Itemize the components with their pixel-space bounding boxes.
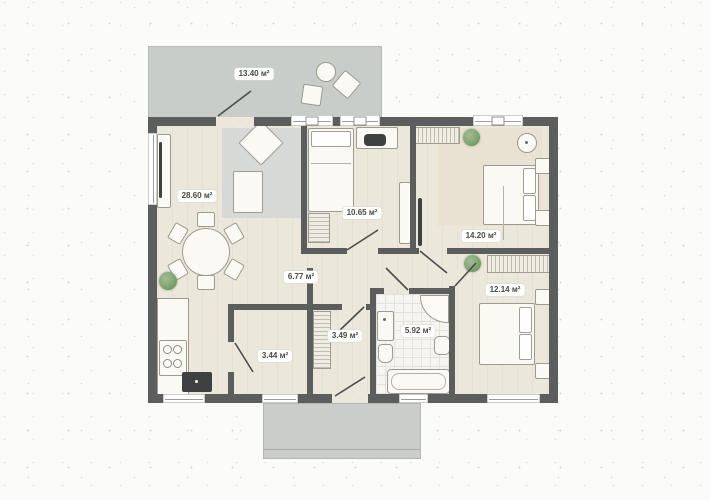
room-label-bedroom-master: 14.20 м² xyxy=(462,230,501,242)
room-label-bathroom: 5.92 м² xyxy=(401,325,435,337)
dining-chair xyxy=(197,275,215,290)
terrace-chair xyxy=(301,84,324,107)
wall-pantry-left xyxy=(228,372,234,394)
bathroom-sink xyxy=(434,336,450,355)
wall-pantry-top xyxy=(228,304,307,310)
wall-bedroom-hall xyxy=(301,248,347,254)
wall-bathroom-left xyxy=(370,288,376,394)
window-kitchen xyxy=(163,394,205,403)
room-label-hallway: 6.77 м² xyxy=(284,271,318,283)
tv-screen xyxy=(159,142,162,198)
wall-entry-top xyxy=(313,304,342,310)
desk-chair xyxy=(364,134,386,146)
terrace-door-opening xyxy=(216,117,254,126)
room-label-bedroom-small: 10.65 м² xyxy=(343,207,382,219)
washing-machine xyxy=(377,311,394,341)
stove xyxy=(159,340,187,376)
terrace-table xyxy=(316,62,336,82)
shelf-unit xyxy=(308,213,330,243)
window-bedroom-master xyxy=(473,115,523,126)
floor-lamp xyxy=(517,133,537,153)
wall-pantry-entry xyxy=(307,268,313,394)
entrance-porch xyxy=(263,403,421,459)
exterior-wall-right xyxy=(549,117,558,403)
pillow xyxy=(519,307,532,333)
window-bathroom xyxy=(399,394,428,403)
window-pantry xyxy=(262,394,298,403)
single-bed xyxy=(308,128,354,212)
wall-entry-top xyxy=(366,304,370,310)
wall-between-bedrooms xyxy=(410,117,416,254)
dresser xyxy=(414,127,460,144)
porch-step-line xyxy=(264,449,420,450)
window-bedroom-small xyxy=(291,115,333,126)
window-bedroom-second xyxy=(487,394,540,403)
dining-table xyxy=(182,228,230,276)
plant-icon xyxy=(159,272,177,290)
wardrobe xyxy=(487,255,551,273)
window-bedroom-small xyxy=(340,115,380,126)
kitchen-sink xyxy=(182,372,212,392)
room-label-pantry: 3.44 м² xyxy=(258,350,292,362)
wall-living-bedroom xyxy=(301,117,307,254)
coffee-table xyxy=(233,171,263,213)
floor-plan-canvas: 13.40 м² 28.60 м² 10.65 м² 14.20 м² 6.77… xyxy=(0,0,710,500)
wall-bathroom-top xyxy=(376,288,384,294)
dining-chair xyxy=(197,212,215,227)
wall-bedroom2-bath xyxy=(449,286,455,394)
plant-icon xyxy=(464,255,481,272)
window-living xyxy=(148,133,157,205)
room-label-entry-hall: 3.49 м² xyxy=(328,330,362,342)
plant-icon xyxy=(463,129,480,146)
entrance-door-opening xyxy=(332,394,368,403)
room-label-living-kitchen: 28.60 м² xyxy=(178,190,217,202)
bathtub xyxy=(387,369,450,394)
wall-pantry-left xyxy=(228,310,234,342)
room-label-terrace: 13.40 м² xyxy=(235,68,274,80)
wall-master-hall xyxy=(447,248,549,254)
radiator xyxy=(418,198,422,246)
pillow xyxy=(519,334,532,360)
room-label-bedroom-second: 12.14 м² xyxy=(486,284,525,296)
toilet xyxy=(378,344,393,363)
wall-bathroom-top xyxy=(409,288,449,294)
